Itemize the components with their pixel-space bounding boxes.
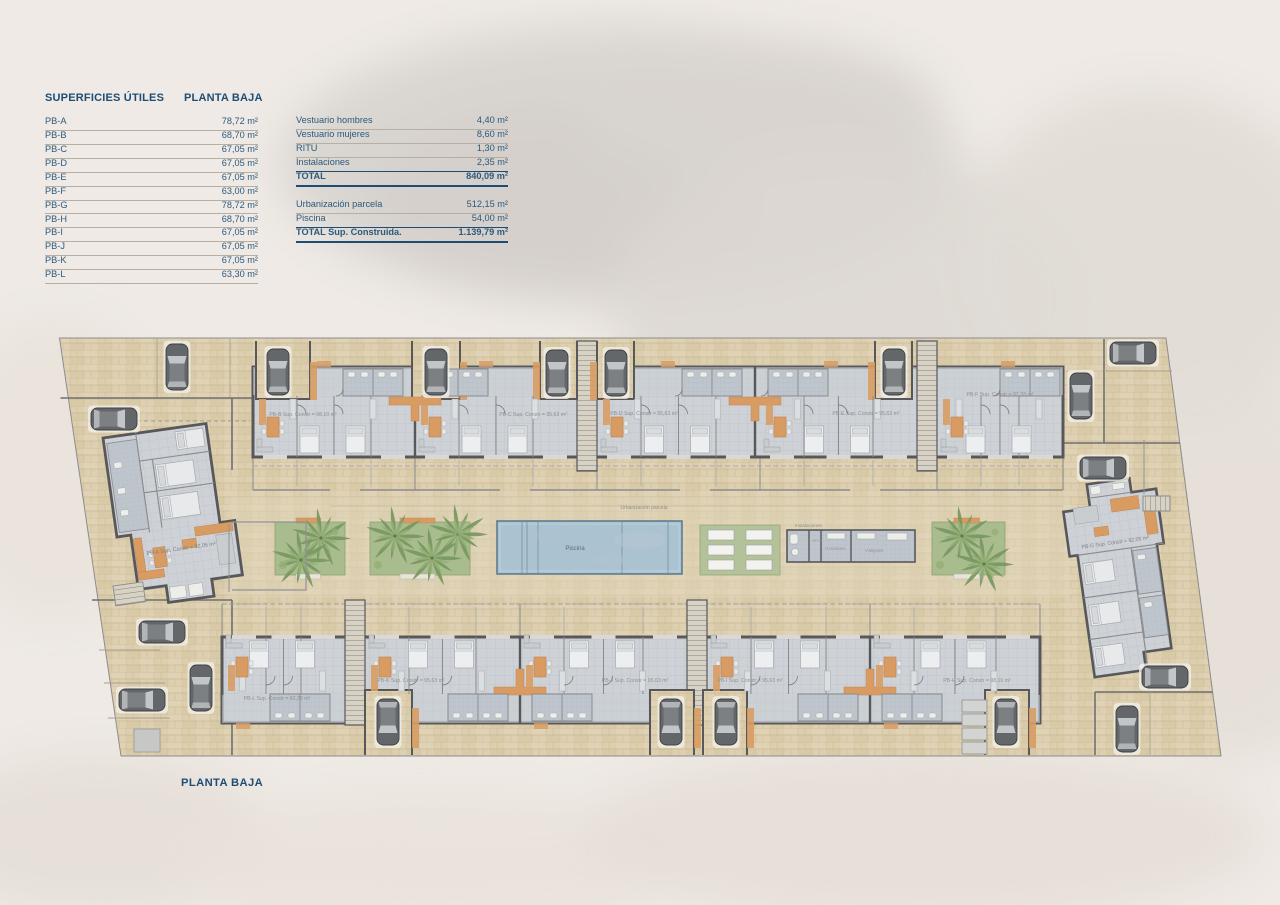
svg-text:PB-D Sup. Constr = 95,63 m²: PB-D Sup. Constr = 95,63 m² [610, 411, 678, 417]
svg-text:RITU: RITU [812, 538, 821, 543]
svg-text:Piscina: Piscina [565, 546, 585, 552]
svg-text:PB-E Sup. Constr = 95,63 m²: PB-E Sup. Constr = 95,63 m² [832, 411, 900, 417]
svg-text:PB-L Sup. Constr = 82,33 m²: PB-L Sup. Constr = 82,33 m² [244, 696, 311, 702]
svg-text:PB-H Sup. Constr = 98,10 m²: PB-H Sup. Constr = 98,10 m² [943, 678, 1011, 684]
svg-text:PLANTA BAJA: PLANTA BAJA [181, 777, 263, 789]
svg-text:Urbanización parcela: Urbanización parcela [621, 505, 668, 511]
svg-text:PB-F Sup. Constr = 82,33 m²: PB-F Sup. Constr = 82,33 m² [966, 392, 1033, 398]
svg-text:V.Mujeres: V.Mujeres [865, 548, 883, 553]
svg-text:V.Hombres: V.Hombres [825, 546, 846, 551]
svg-text:PB-B Sup. Constr = 98,10 m²: PB-B Sup. Constr = 98,10 m² [269, 412, 337, 418]
svg-text:PB-I Sup. Constr = 95,63 m²: PB-I Sup. Constr = 95,63 m² [717, 678, 783, 684]
svg-text:PB-K Sup. Constr = 95,63 m²: PB-K Sup. Constr = 95,63 m² [377, 678, 445, 684]
svg-text:Instalaciones: Instalaciones [795, 523, 823, 528]
svg-text:PB-C Sup. Constr = 95,63 m²: PB-C Sup. Constr = 95,63 m² [499, 412, 567, 418]
